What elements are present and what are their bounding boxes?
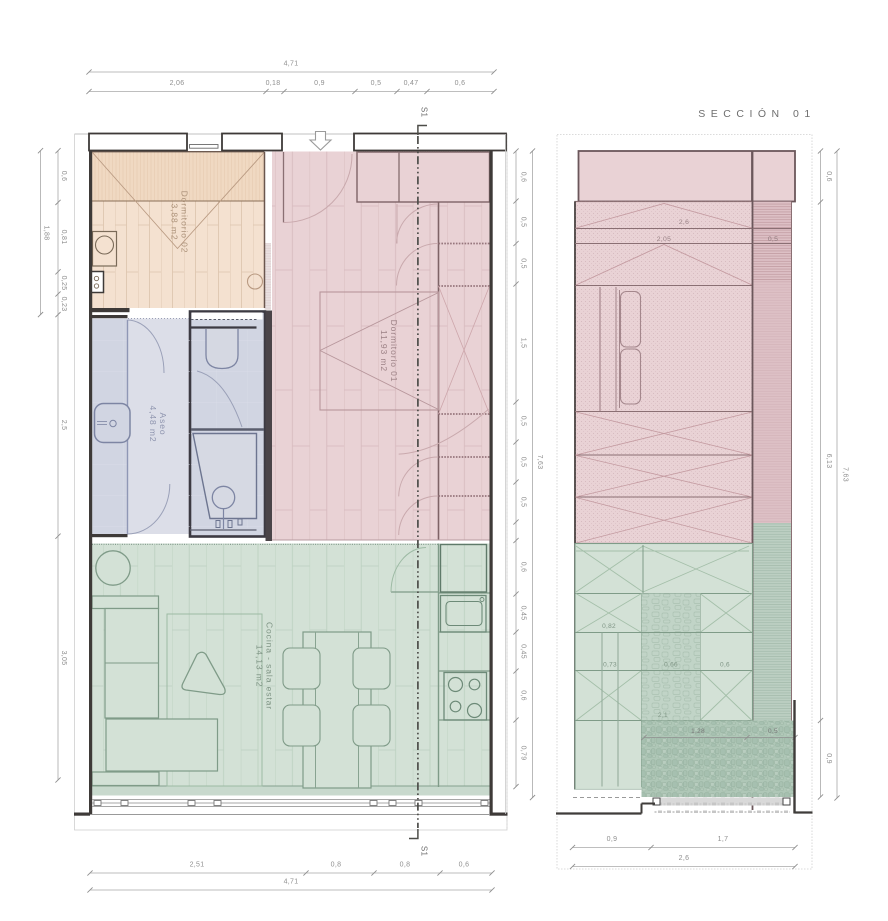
svg-text:0,82: 0,82 xyxy=(602,623,616,630)
svg-text:1,88: 1,88 xyxy=(43,226,50,241)
svg-text:0,5: 0,5 xyxy=(768,236,778,243)
svg-text:0,45: 0,45 xyxy=(520,644,527,659)
svg-text:0,6: 0,6 xyxy=(455,80,466,87)
svg-text:0,5: 0,5 xyxy=(768,728,778,735)
svg-text:0,5: 0,5 xyxy=(371,80,382,87)
svg-text:0,6: 0,6 xyxy=(60,171,67,182)
svg-text:0,5: 0,5 xyxy=(520,217,527,228)
svg-text:0,5: 0,5 xyxy=(520,258,527,269)
svg-text:0,79: 0,79 xyxy=(520,746,527,761)
svg-text:0,18: 0,18 xyxy=(266,80,281,87)
svg-text:0,47: 0,47 xyxy=(404,80,419,87)
svg-text:0,73: 0,73 xyxy=(603,662,617,669)
svg-text:4,71: 4,71 xyxy=(284,879,299,886)
svg-text:0,45: 0,45 xyxy=(520,606,527,621)
svg-text:S1: S1 xyxy=(420,846,429,857)
svg-text:2,05: 2,05 xyxy=(657,236,671,243)
svg-text:0,5: 0,5 xyxy=(520,497,527,508)
svg-text:2,1: 2,1 xyxy=(658,712,668,719)
svg-text:0,81: 0,81 xyxy=(60,230,67,245)
svg-text:1,7: 1,7 xyxy=(718,836,729,843)
svg-text:0,9: 0,9 xyxy=(607,836,618,843)
svg-text:1,28: 1,28 xyxy=(691,728,705,735)
svg-text:0,9: 0,9 xyxy=(314,80,325,87)
svg-text:0,66: 0,66 xyxy=(664,662,678,669)
svg-text:6,13: 6,13 xyxy=(825,454,832,469)
svg-text:SECCIÓN 01: SECCIÓN 01 xyxy=(698,107,815,120)
svg-text:0,5: 0,5 xyxy=(520,416,527,427)
svg-text:0,6: 0,6 xyxy=(520,690,527,701)
svg-text:0,6: 0,6 xyxy=(520,172,527,183)
svg-text:2,6: 2,6 xyxy=(679,219,689,226)
svg-text:0,5: 0,5 xyxy=(520,457,527,468)
svg-text:2,06: 2,06 xyxy=(170,80,185,87)
svg-text:0,6: 0,6 xyxy=(520,562,527,573)
svg-text:3,05: 3,05 xyxy=(60,651,67,666)
svg-text:2,51: 2,51 xyxy=(190,862,205,869)
svg-text:2,5: 2,5 xyxy=(60,420,67,431)
svg-text:S1: S1 xyxy=(420,107,429,118)
svg-text:0,9: 0,9 xyxy=(825,753,832,764)
svg-text:7,63: 7,63 xyxy=(842,467,849,482)
svg-text:0,8: 0,8 xyxy=(400,862,411,869)
svg-text:1,5: 1,5 xyxy=(520,338,527,349)
svg-text:0,6: 0,6 xyxy=(720,662,730,669)
svg-text:0,6: 0,6 xyxy=(459,862,470,869)
svg-text:0,23: 0,23 xyxy=(60,297,67,312)
svg-text:2,6: 2,6 xyxy=(679,855,690,862)
svg-text:0,8: 0,8 xyxy=(331,862,342,869)
svg-text:4,71: 4,71 xyxy=(284,61,299,68)
svg-text:0,25: 0,25 xyxy=(60,276,67,291)
svg-text:0,6: 0,6 xyxy=(825,171,832,182)
svg-text:7,63: 7,63 xyxy=(536,455,543,470)
